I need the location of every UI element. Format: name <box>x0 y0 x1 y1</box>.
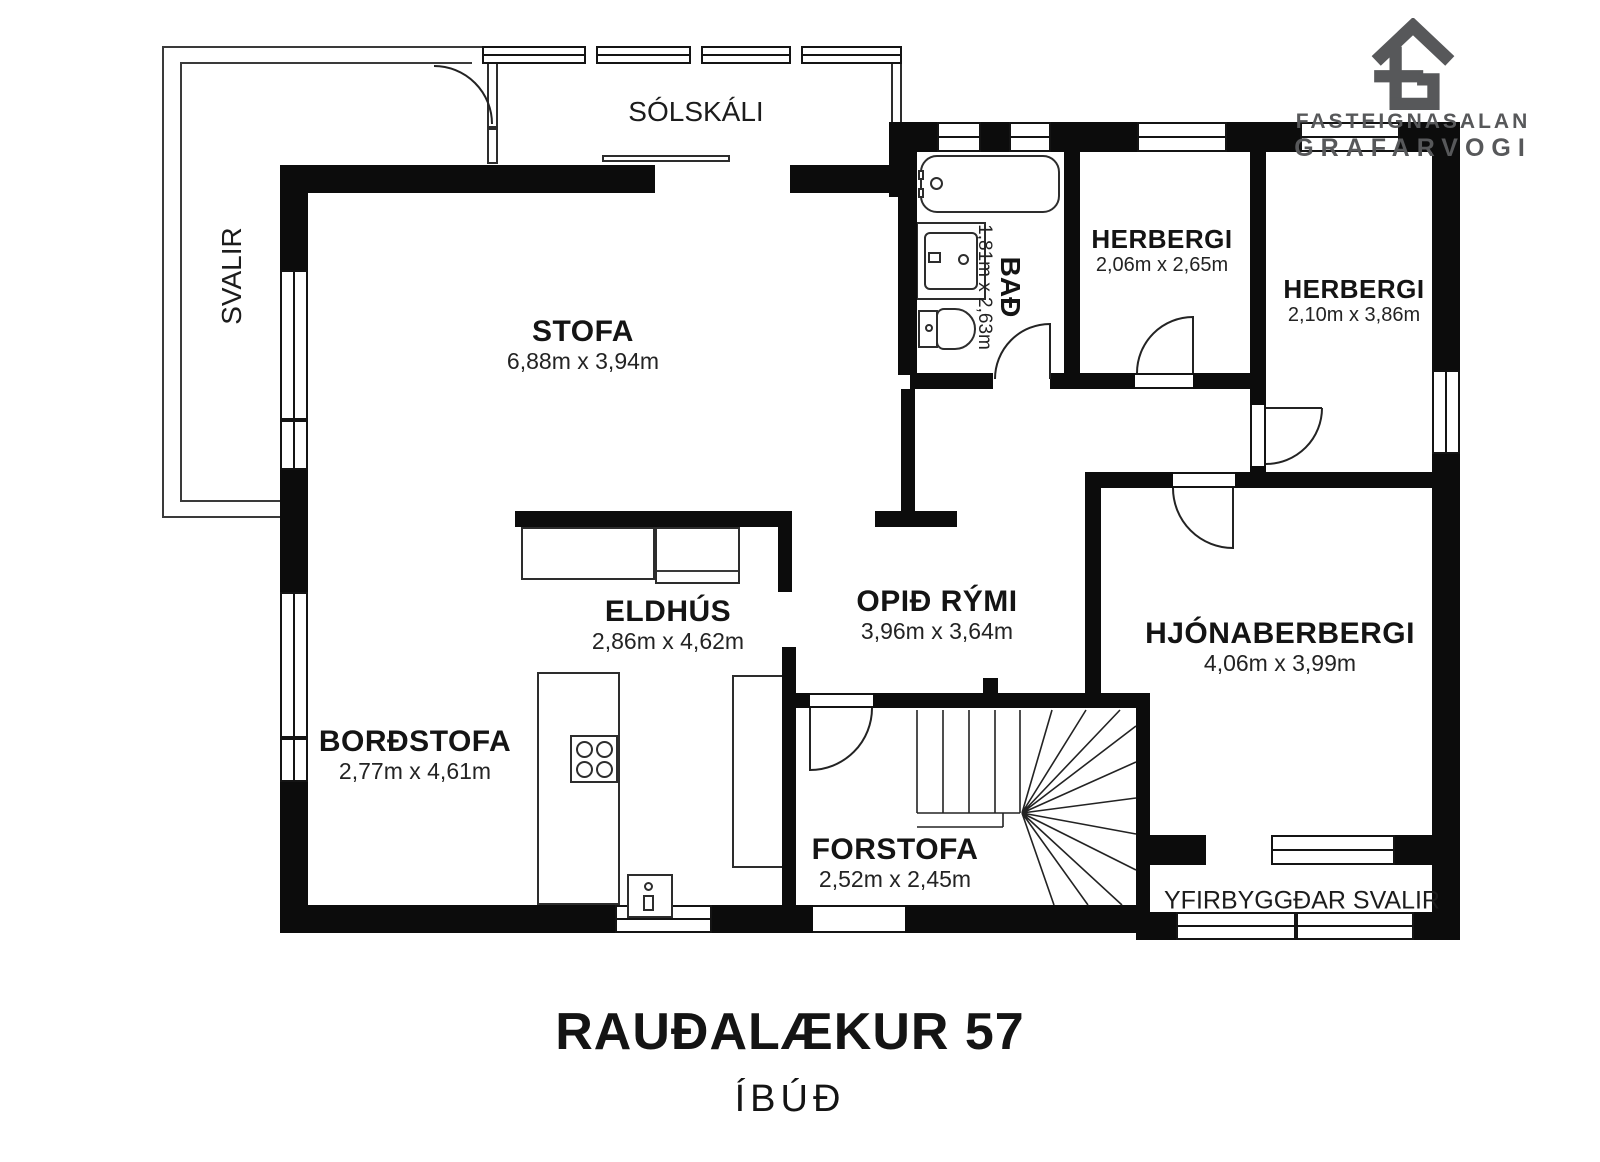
logo-text-line1: FASTEIGNASALAN <box>1283 110 1543 134</box>
stair-treads <box>917 710 1020 813</box>
room-label-forstofa: FORSTOFA 2,52m x 2,45m <box>812 834 979 893</box>
room-label-opid-rymi: OPIÐ RÝMI 3,96m x 3,64m <box>856 586 1017 645</box>
door-arc-herbergi1 <box>1137 317 1193 373</box>
room-label-stofa: STOFA 6,88m x 3,94m <box>507 316 659 375</box>
door-arc-forstofa <box>810 708 872 770</box>
room-label-yfirbyggdar-svalir: YFIRBYGGÐAR SVALIR <box>1164 887 1440 916</box>
door-arc-solskali <box>434 66 492 124</box>
room-label-bad: BAÐ <box>994 257 1026 318</box>
room-label-herbergi1: HERBERGI 2,06m x 2,65m <box>1091 226 1232 277</box>
plan-title-unit: ÍBÚÐ <box>735 1078 846 1121</box>
room-label-herbergi2: HERBERGI 2,10m x 3,86m <box>1283 276 1424 327</box>
realtor-logo: FASTEIGNASALAN GRAFARVOGI <box>1283 18 1543 163</box>
kitchen-sink-faucet <box>643 895 654 911</box>
door-arc-bath <box>995 324 1050 379</box>
room-label-solskali: SÓLSKÁLI <box>628 96 763 128</box>
house-logo-icon <box>1358 18 1468 110</box>
stair-winders <box>1022 710 1136 905</box>
room-dims-bad: 1,81m x 2,63m <box>973 224 995 350</box>
stair-landing <box>917 813 1020 827</box>
room-label-bordstofa: BORÐSTOFA 2,77m x 4,61m <box>319 726 511 785</box>
room-label-eldhus: ELDHÚS 2,86m x 4,62m <box>592 596 744 655</box>
room-label-svalir: SVALIR <box>216 227 248 325</box>
door-arc-master <box>1173 488 1233 548</box>
doors-and-stairs-overlay <box>0 0 1600 1162</box>
kitchen-sink-drain <box>644 882 653 891</box>
room-label-hjonaberbergi: HJÓNABERBERGI 4,06m x 3,99m <box>1145 618 1415 677</box>
logo-text-line2: GRAFARVOGI <box>1283 134 1543 163</box>
plan-title-address: RAUÐALÆKUR 57 <box>555 1002 1024 1062</box>
logo-roof <box>1376 26 1450 61</box>
floorplan-canvas: STOFA 6,88m x 3,94m SÓLSKÁLI SVALIR BAÐ … <box>0 0 1600 1162</box>
door-arc-herbergi2 <box>1266 408 1322 464</box>
